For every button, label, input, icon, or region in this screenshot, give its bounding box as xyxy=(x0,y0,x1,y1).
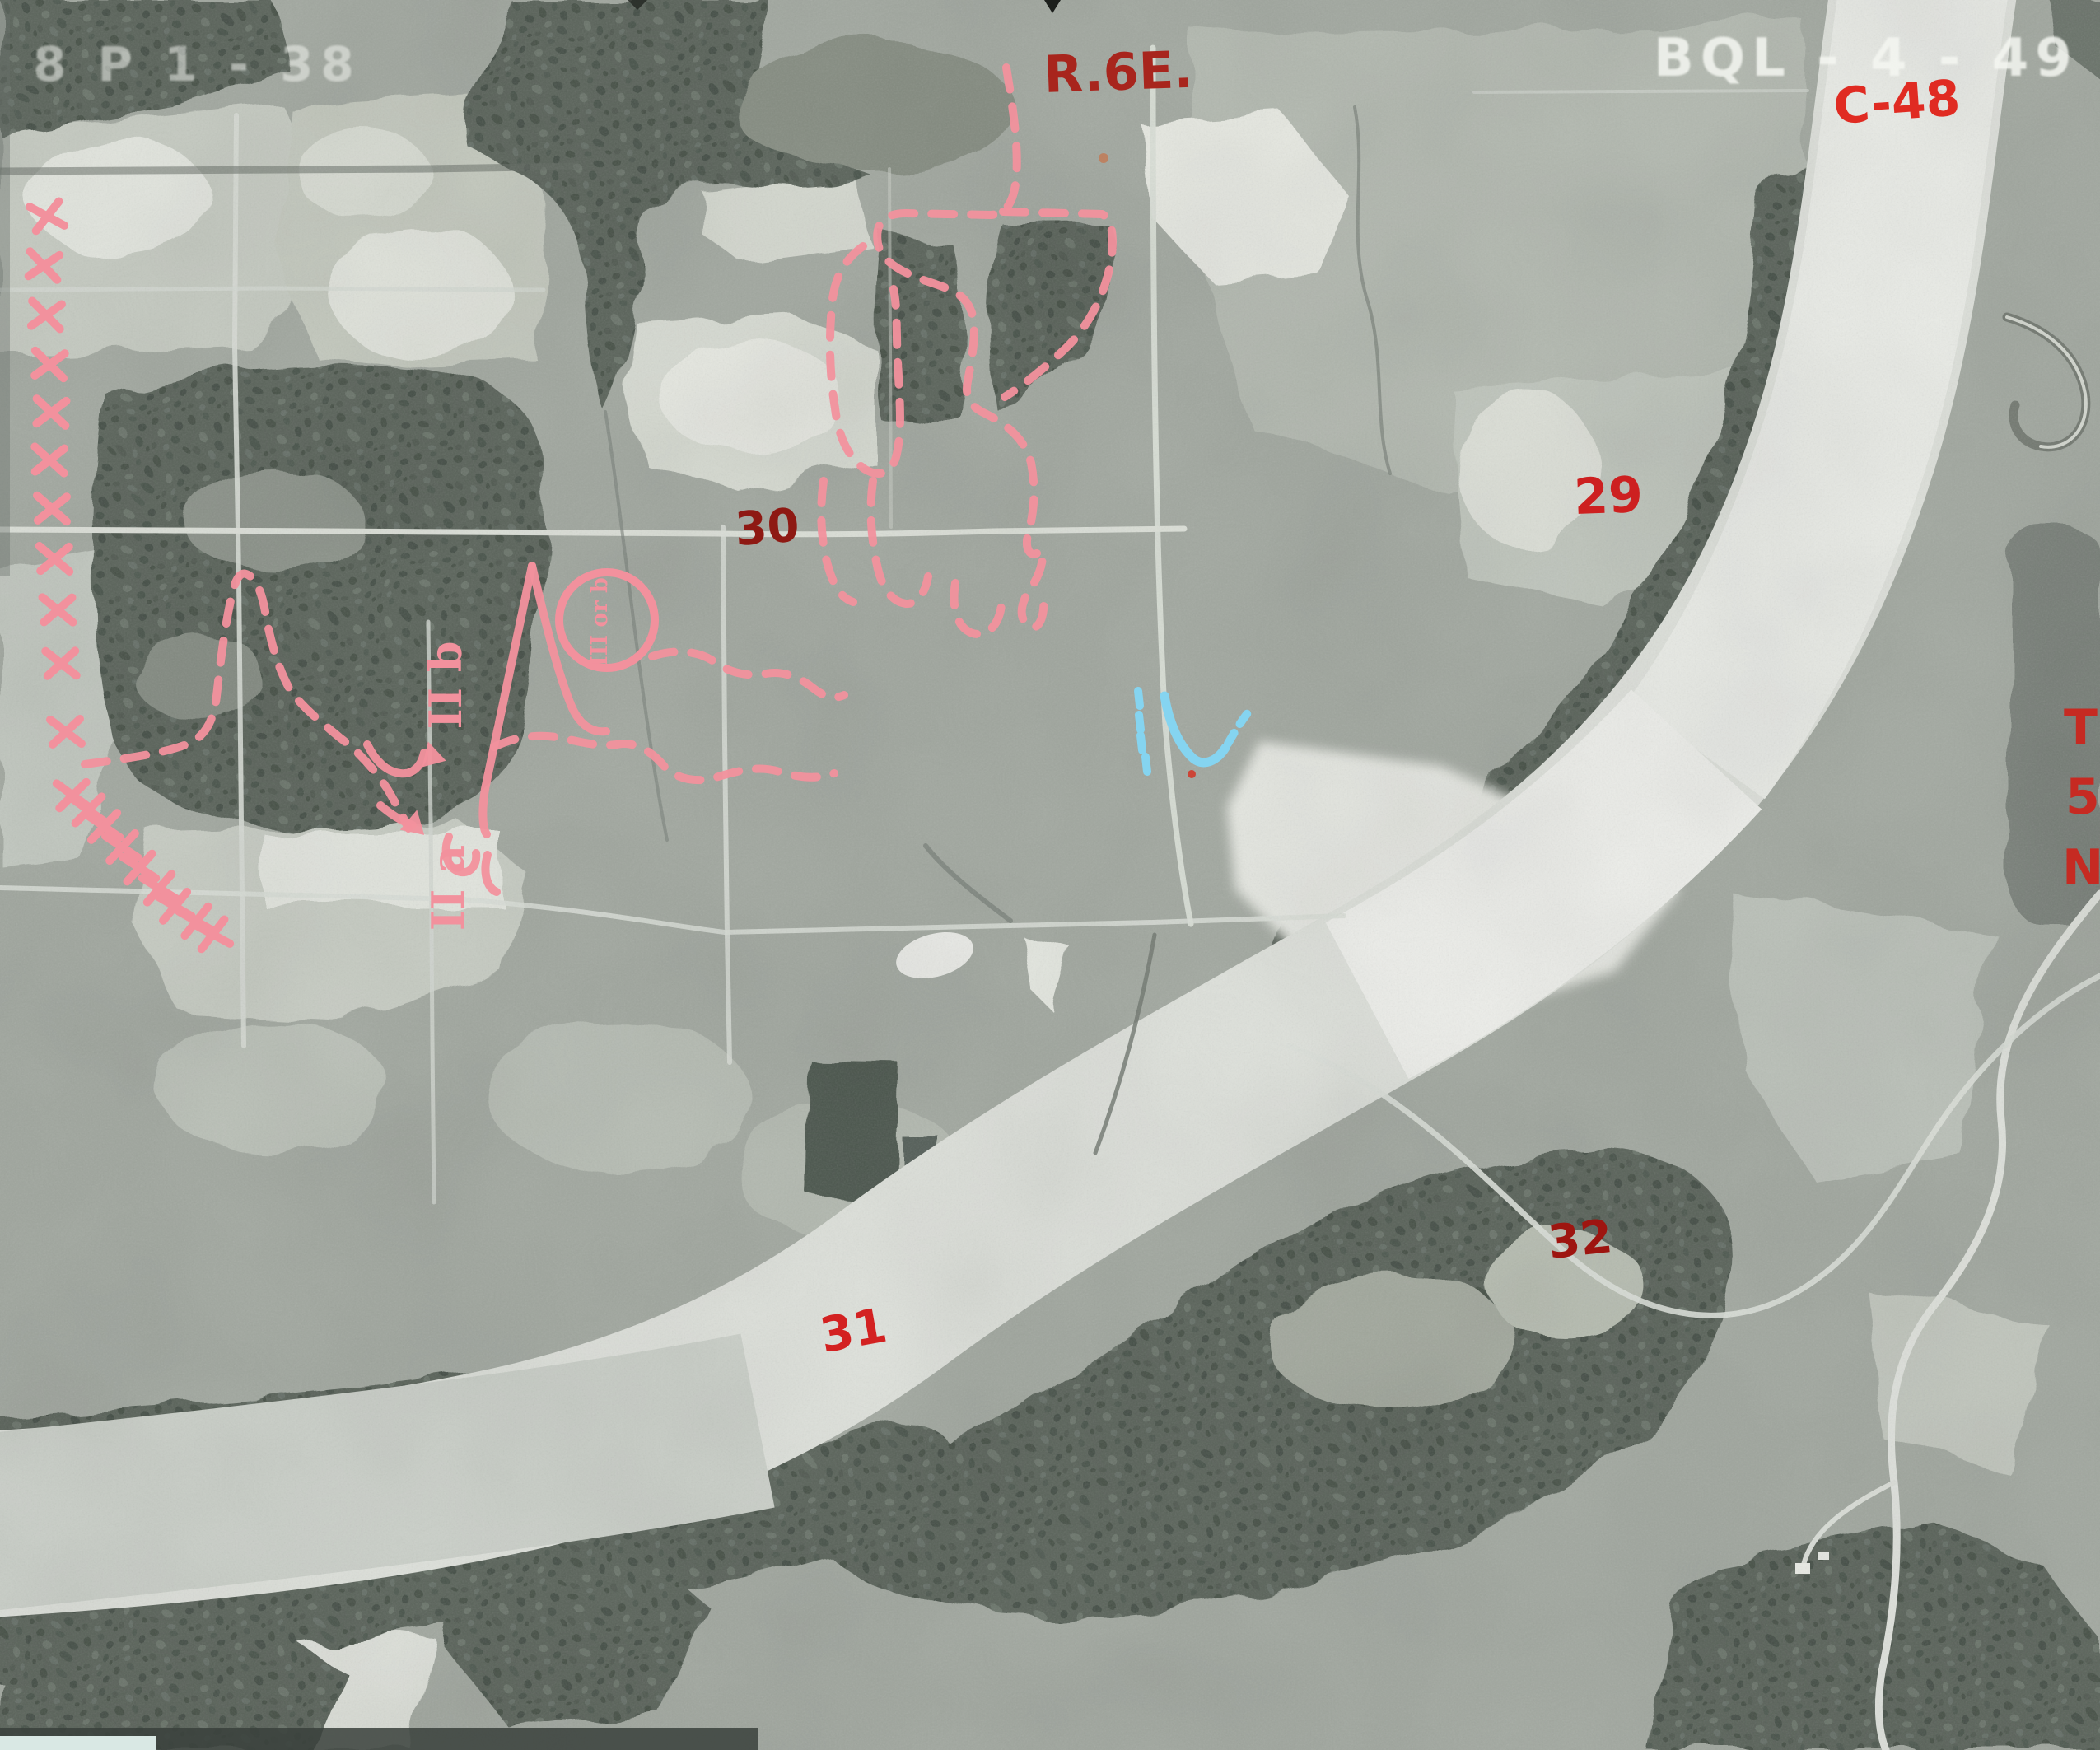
red-ink-dot-2 xyxy=(1099,153,1108,163)
aerial-photo-canvas: 8 P 1 - 38 BQL - 4 - 49 II bII aIII or b… xyxy=(0,0,2100,1750)
red-label-township-t: T xyxy=(2064,699,2098,757)
red-ink-dot-1 xyxy=(1188,770,1196,778)
annotated-aerial-photo: 8 P 1 - 38 BQL - 4 - 49 II bII aIII or b… xyxy=(0,0,2100,1750)
red-label-section-29: 29 xyxy=(1573,466,1644,526)
red-label-township-n: N xyxy=(2062,839,2100,897)
red-label-photo-code: C-48 xyxy=(1832,69,1962,136)
pink-label-stand-3-circled: III or b xyxy=(587,577,613,666)
red-label-section-32: 32 xyxy=(1546,1210,1615,1270)
stamp-top-left-id: 8 P 1 - 38 xyxy=(33,36,362,92)
blue-dot-mark xyxy=(1141,735,1142,750)
blue-dot-mark xyxy=(1138,691,1140,706)
film-grain-overlay xyxy=(0,0,2100,1750)
red-label-section-31: 31 xyxy=(816,1297,891,1364)
blue-dot-mark xyxy=(1139,715,1141,730)
pink-label-stand-2b: II b xyxy=(419,641,472,729)
pink-label-stand-2a: II a xyxy=(422,845,474,931)
red-label-township-5: 5 xyxy=(2065,768,2100,826)
blue-dot-mark xyxy=(1146,757,1147,772)
red-label-section-30: 30 xyxy=(733,499,800,557)
red-label-range-label: R.6E. xyxy=(1043,40,1194,105)
